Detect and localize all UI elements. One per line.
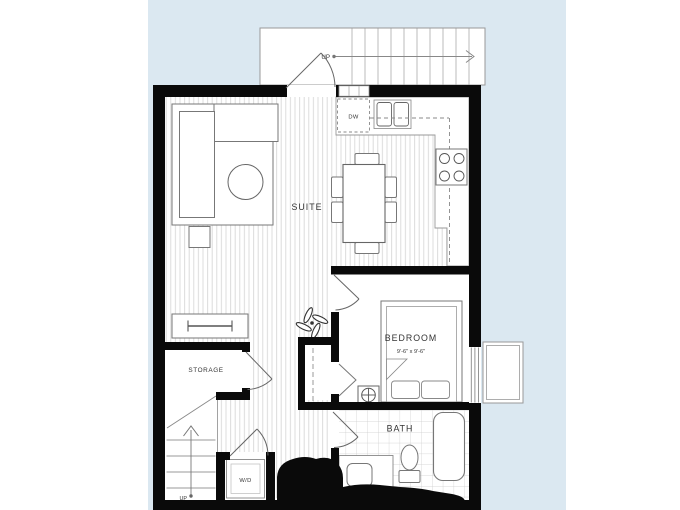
storage-label: STORAGE bbox=[188, 367, 223, 374]
dining-chair bbox=[385, 202, 397, 223]
wall bbox=[165, 342, 250, 350]
wd-label: W/D bbox=[239, 478, 251, 484]
bedroom-dimensions: 9'-6" x 9'-6" bbox=[397, 349, 425, 355]
up-label-lower: UP bbox=[180, 496, 188, 502]
wall bbox=[469, 403, 481, 510]
dining-chair bbox=[355, 243, 379, 254]
bedroom-label: BEDROOM bbox=[385, 333, 437, 343]
tv-console bbox=[172, 314, 248, 338]
dw-label: DW bbox=[348, 115, 358, 121]
suite-label: SUITE bbox=[292, 202, 323, 212]
toilet-bowl bbox=[401, 445, 418, 470]
wall bbox=[298, 337, 305, 410]
wall bbox=[153, 85, 165, 510]
sofa-back-cushion bbox=[214, 104, 278, 142]
wall bbox=[331, 266, 469, 275]
vanity-sink bbox=[347, 464, 372, 487]
dining-chair bbox=[355, 154, 379, 165]
dining-table bbox=[343, 165, 385, 243]
wood-floor-hall-1 bbox=[250, 342, 298, 402]
sink-bowl-right bbox=[394, 103, 409, 127]
wall bbox=[153, 85, 287, 97]
stair-start-dot bbox=[189, 494, 192, 497]
light-fixture-icon bbox=[358, 386, 379, 404]
wall bbox=[216, 452, 230, 460]
pillow bbox=[422, 381, 450, 399]
wall bbox=[266, 452, 275, 510]
wall bbox=[469, 85, 481, 347]
wall bbox=[216, 452, 225, 510]
floor-plan-page: UP bbox=[0, 0, 680, 510]
pillow bbox=[392, 381, 420, 399]
stair-start-dot bbox=[332, 55, 335, 58]
sink-bowl-left bbox=[377, 103, 392, 127]
wall bbox=[242, 342, 250, 352]
wall bbox=[216, 392, 250, 400]
bathtub bbox=[434, 413, 465, 481]
wall bbox=[298, 402, 469, 410]
side-table bbox=[189, 227, 210, 248]
stair-notch bbox=[339, 86, 369, 96]
dining-chair bbox=[332, 202, 344, 223]
toilet-tank bbox=[399, 471, 420, 483]
cooktop bbox=[436, 149, 467, 185]
upper-staircase: UP bbox=[260, 28, 485, 85]
bath-label: BATH bbox=[387, 424, 414, 434]
floor-plan-svg: UP bbox=[0, 0, 680, 510]
sofa-chaise bbox=[180, 112, 215, 218]
dining-chair bbox=[332, 177, 344, 198]
dining-chair bbox=[385, 177, 397, 198]
balcony bbox=[483, 342, 523, 403]
coffee-table bbox=[228, 165, 263, 200]
